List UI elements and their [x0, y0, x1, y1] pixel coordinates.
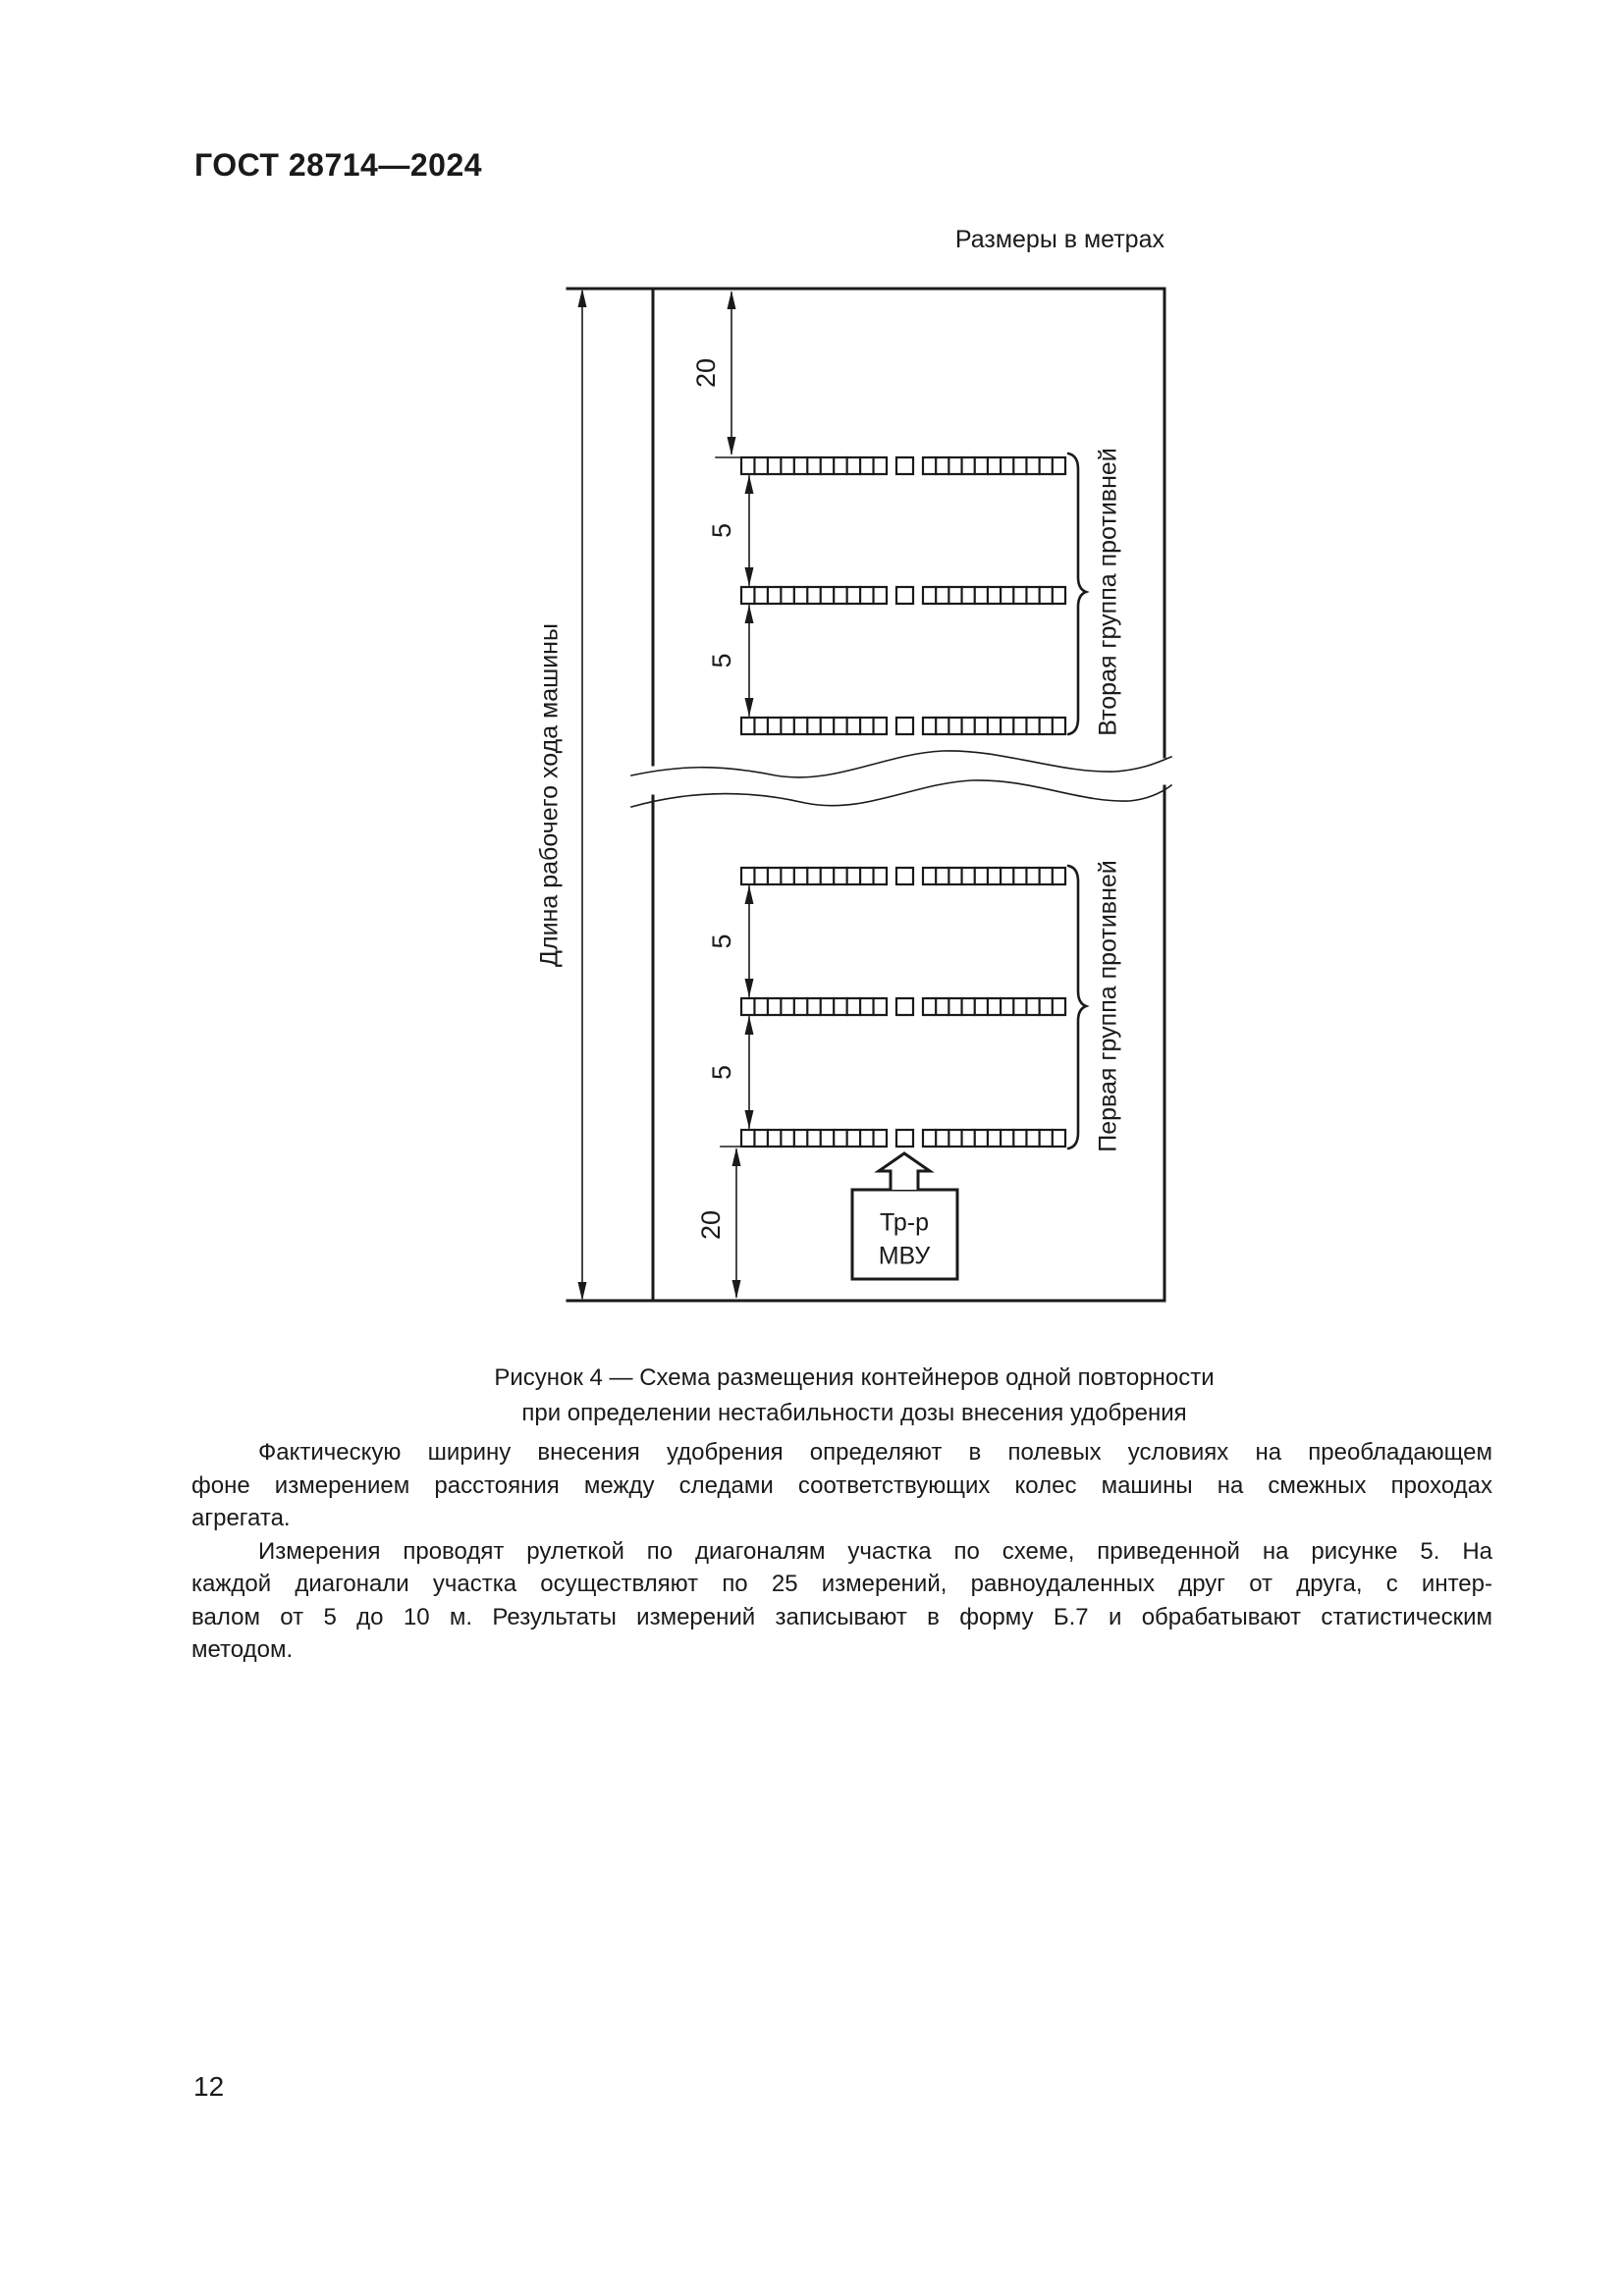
tray-strip — [741, 587, 887, 604]
bottom-gap-value: 20 — [696, 1210, 726, 1240]
container-rows — [741, 457, 1065, 1147]
tray-strip — [923, 587, 1065, 604]
bottom-group-brace — [1068, 866, 1086, 1148]
tray-strip — [741, 718, 887, 734]
tray-strip — [741, 457, 887, 474]
row-gap-value: 5 — [707, 523, 736, 538]
row-gap-dimension: 5 — [707, 605, 753, 717]
figure-caption: Рисунок 4 — Схема размещения контейнеров… — [206, 1361, 1502, 1431]
row-gap-value: 5 — [707, 653, 736, 667]
single-tray — [896, 868, 913, 884]
top-group-label: Вторая группа противней — [1095, 448, 1122, 736]
tray-strip — [741, 1130, 887, 1147]
paragraph-line: методом. — [191, 1633, 1492, 1667]
figure-caption-line1: Рисунок 4 — Схема размещения контейнеров… — [206, 1361, 1502, 1396]
tray-strip — [923, 718, 1065, 734]
tray-strip — [923, 998, 1065, 1015]
tray-strip — [923, 868, 1065, 884]
overall-length-dimension — [578, 289, 587, 1301]
single-tray — [896, 998, 913, 1015]
tractor-label-line2: МВУ — [879, 1243, 931, 1270]
paragraph-line: агрегата. — [191, 1502, 1492, 1535]
tray-row — [741, 1130, 1065, 1147]
group-braces — [1068, 454, 1086, 1148]
bottom-group-label: Первая группа противней — [1095, 860, 1122, 1152]
paragraph-line: фоне измерением расстояния между следами… — [191, 1469, 1492, 1503]
row-gap-dimensions: 5555 — [707, 475, 753, 1129]
top-group-brace — [1068, 454, 1086, 734]
tray-strip — [741, 998, 887, 1015]
figure-caption-line2: при определении нестабильности дозы внес… — [206, 1396, 1502, 1431]
document-page: ГОСТ 28714—2024 Размеры в метрах Длина р… — [0, 0, 1624, 2296]
paragraph-line: Фактическую ширину внесения удобрения оп… — [191, 1436, 1492, 1469]
units-note: Размеры в метрах — [772, 226, 1164, 254]
single-tray — [896, 718, 913, 734]
tray-row — [741, 457, 1065, 474]
tray-row — [741, 587, 1065, 604]
single-tray — [896, 1130, 913, 1147]
tray-row — [741, 718, 1065, 734]
body-text: Фактическую ширину внесения удобрения оп… — [191, 1436, 1492, 1667]
break-wave-lines — [631, 751, 1171, 807]
row-gap-dimension: 5 — [707, 475, 753, 586]
tray-strip — [741, 868, 887, 884]
tractor-label-line1: Тр-р — [880, 1209, 929, 1237]
paragraph-line: Измерения проводят рулеткой по диагоналя… — [191, 1535, 1492, 1569]
single-tray — [896, 457, 913, 474]
row-gap-dimension: 5 — [707, 1016, 753, 1129]
page-number: 12 — [193, 2071, 224, 2103]
document-header: ГОСТ 28714—2024 — [194, 147, 482, 184]
row-gap-value: 5 — [707, 1065, 736, 1080]
top-gap-value: 20 — [691, 358, 721, 388]
row-gap-dimension: 5 — [707, 885, 753, 997]
direction-arrow-icon — [879, 1153, 930, 1190]
paragraph-line: каждой диагонали участка осуществляют по… — [191, 1568, 1492, 1601]
row-gap-value: 5 — [707, 934, 736, 948]
tray-strip — [923, 1130, 1065, 1147]
paragraph-line: валом от 5 до 10 м. Результаты измерений… — [191, 1601, 1492, 1634]
tray-strip — [923, 457, 1065, 474]
figure-4-diagram: Длина рабочего хода машины 20 5555 — [520, 275, 1208, 1325]
tray-row — [741, 868, 1065, 884]
single-tray — [896, 587, 913, 604]
tray-row — [741, 998, 1065, 1015]
left-axis-label: Длина рабочего хода машины — [536, 623, 564, 967]
